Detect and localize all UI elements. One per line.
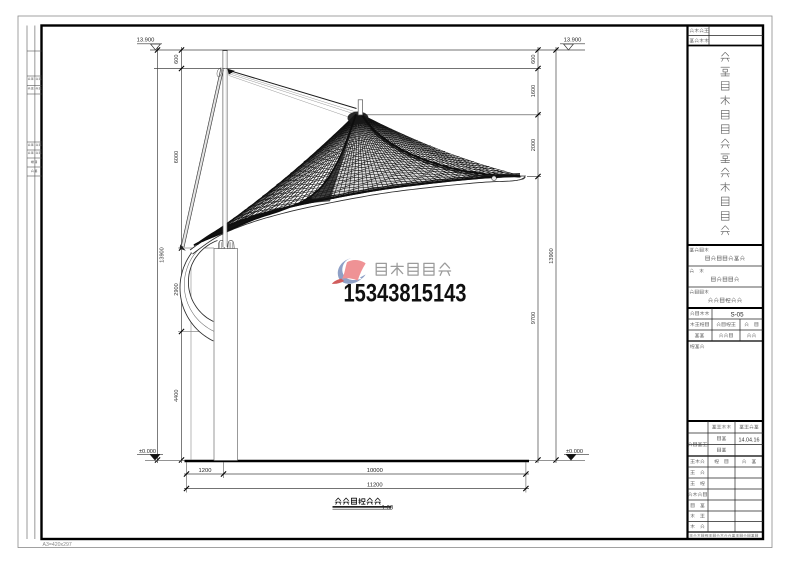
svg-text:15343815143: 15343815143 bbox=[344, 280, 467, 308]
svg-text:2000: 2000 bbox=[531, 139, 537, 151]
svg-text:10000: 10000 bbox=[367, 468, 383, 474]
svg-text:600: 600 bbox=[531, 55, 537, 64]
svg-text:S-05: S-05 bbox=[730, 312, 744, 319]
svg-text:4400: 4400 bbox=[174, 389, 180, 401]
svg-text:13.900: 13.900 bbox=[564, 38, 582, 44]
svg-text:1200: 1200 bbox=[199, 468, 212, 474]
svg-text:±0.000: ±0.000 bbox=[566, 449, 583, 455]
svg-text:±0.000: ±0.000 bbox=[139, 449, 156, 455]
svg-text:11200: 11200 bbox=[367, 482, 383, 488]
svg-text:6000: 6000 bbox=[174, 151, 180, 163]
svg-text:2900: 2900 bbox=[174, 283, 180, 295]
svg-text:13900: 13900 bbox=[549, 248, 555, 264]
svg-text:1600: 1600 bbox=[531, 85, 537, 97]
svg-text:14.04.16: 14.04.16 bbox=[739, 438, 760, 444]
svg-text:600: 600 bbox=[174, 55, 180, 64]
svg-text:1:60: 1:60 bbox=[382, 506, 394, 512]
svg-text:13900: 13900 bbox=[160, 247, 166, 263]
svg-text:A3=420x297: A3=420x297 bbox=[43, 542, 72, 548]
svg-text:9700: 9700 bbox=[531, 312, 537, 324]
svg-text:13.900: 13.900 bbox=[137, 38, 155, 44]
